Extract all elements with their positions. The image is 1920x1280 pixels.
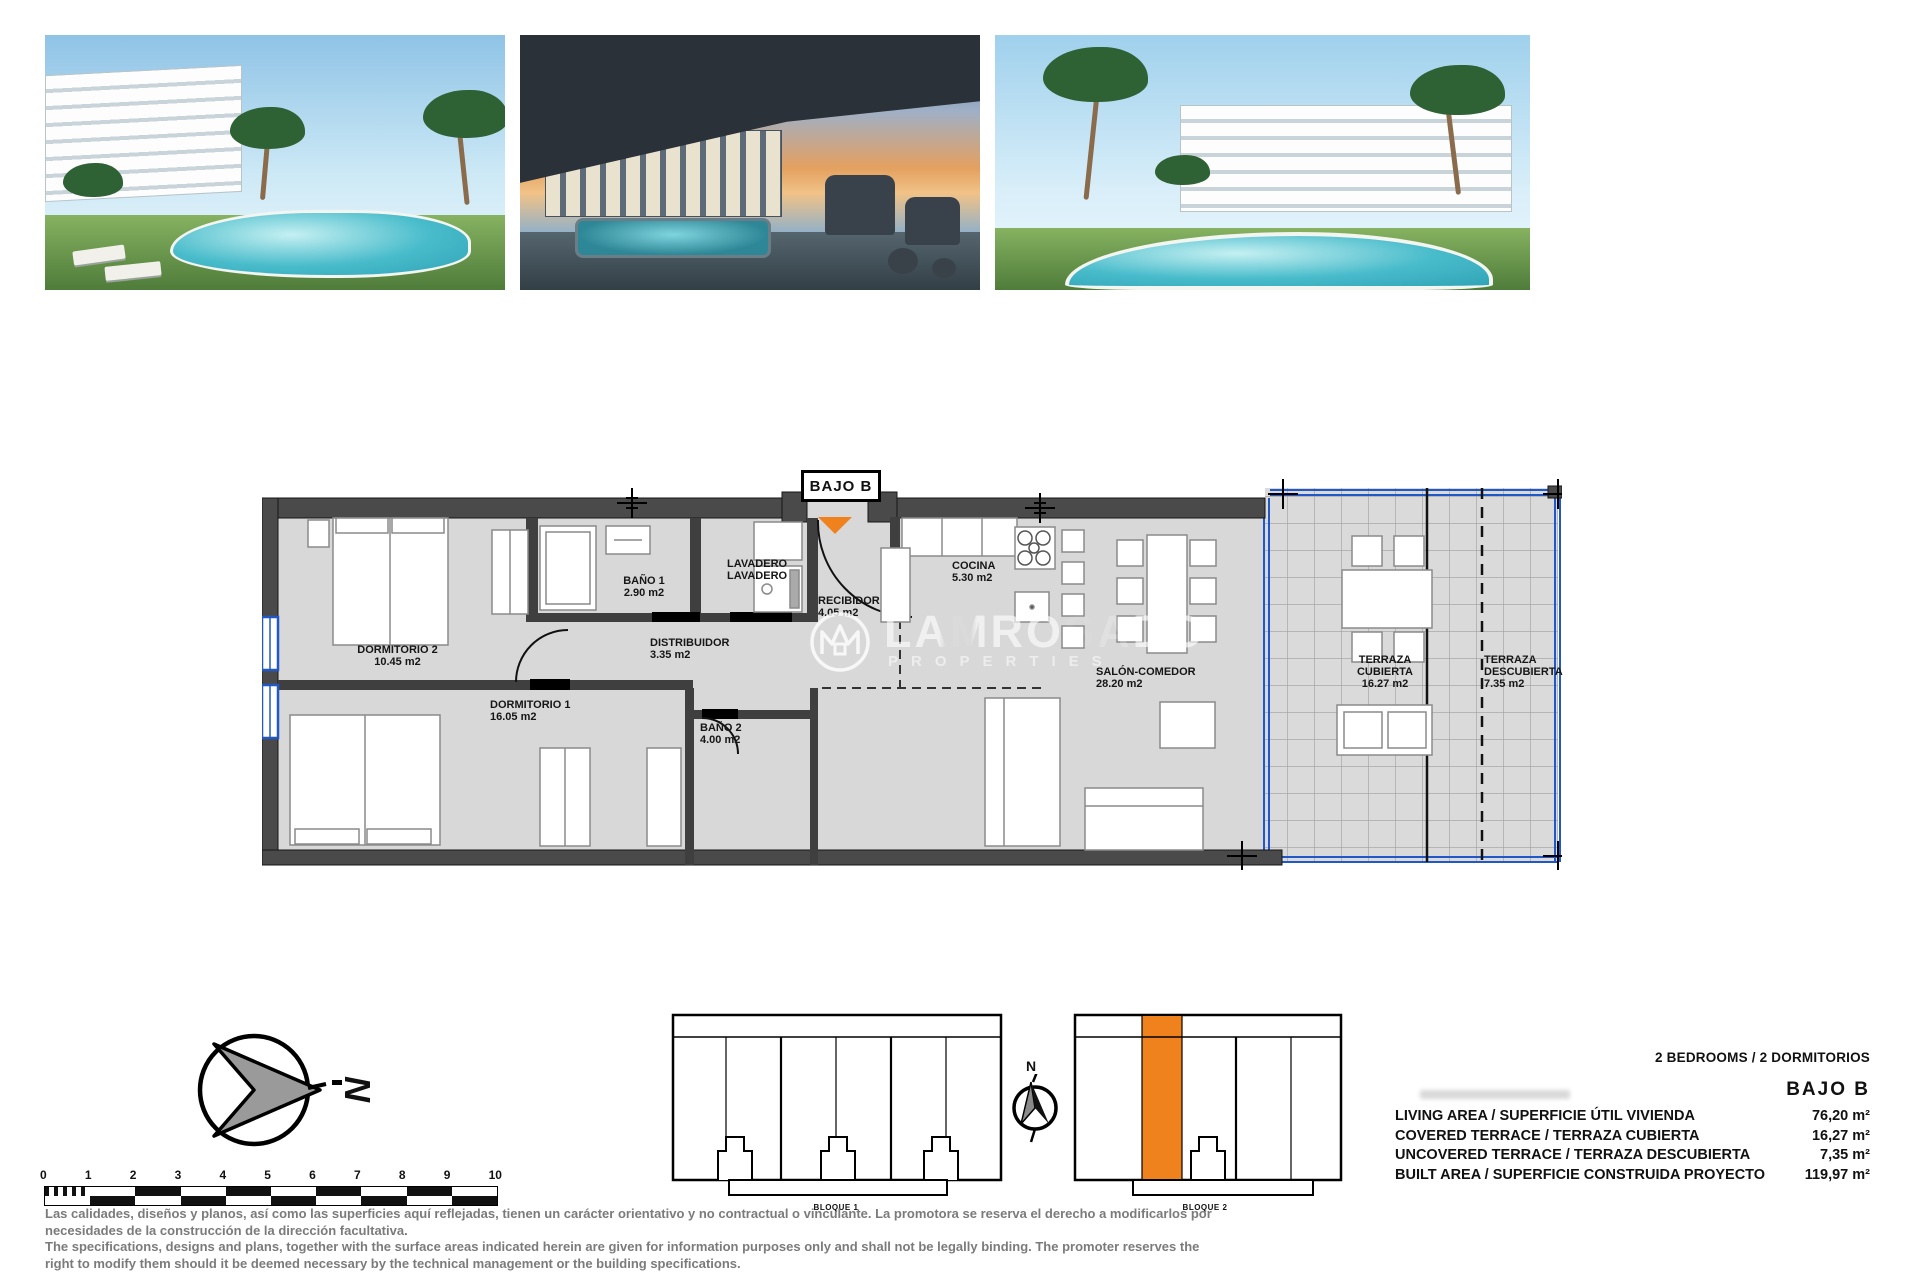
plan-unit-label: BAJO B bbox=[801, 470, 881, 502]
vase bbox=[888, 248, 918, 274]
room-label-bano1: BAÑO 1 2.90 m2 bbox=[598, 575, 690, 599]
armchair-silhouette bbox=[905, 197, 960, 245]
photo-terrace-sunset bbox=[520, 35, 980, 290]
keyplan-block1 bbox=[671, 1013, 1003, 1199]
scale-bar-numbers: 01 23 45 67 89 10 bbox=[40, 1168, 502, 1182]
north-label-small: N bbox=[1026, 1058, 1036, 1074]
room-label-bano2: BAÑO 2 4.00 m2 bbox=[700, 722, 780, 746]
brochure-page: BAJO B DORMITORIO 2 10.45 m2 BAÑO 1 2.90… bbox=[0, 0, 1920, 1280]
pool-dusk bbox=[575, 218, 771, 258]
compass-small-icon bbox=[1010, 1074, 1062, 1150]
palm-crown bbox=[423, 90, 505, 138]
room-label-terraza-cubierta: TERRAZA CUBIERTA 16.27 m2 bbox=[1340, 654, 1430, 690]
shrub bbox=[63, 163, 123, 197]
armchair-silhouette bbox=[825, 175, 895, 235]
palm-crown bbox=[230, 107, 305, 149]
bedrooms-line: 2 BEDROOMS / 2 DORMITORIOS bbox=[1395, 1050, 1870, 1065]
pool bbox=[170, 210, 471, 278]
shrub bbox=[1155, 155, 1210, 185]
keyplan-block2 bbox=[1073, 1013, 1345, 1199]
room-label-dormitorio1: DORMITORIO 1 16.05 m2 bbox=[490, 699, 600, 723]
blurred-project-name bbox=[1420, 1090, 1570, 1099]
summary-row: COVERED TERRACE / TERRAZA CUBIERTA 16,27… bbox=[1395, 1127, 1870, 1147]
photo-pool-day-1 bbox=[45, 35, 505, 290]
unit-summary: 2 BEDROOMS / 2 DORMITORIOS BAJO B LIVING… bbox=[1395, 1050, 1870, 1185]
room-label-terraza-descubierta: TERRAZA DESCUBIERTA 7.35 m2 bbox=[1484, 654, 1564, 690]
scale-bar bbox=[44, 1186, 498, 1206]
watermark-logo-icon bbox=[808, 610, 872, 674]
legal-disclaimer: Las calidades, diseños y planos, así com… bbox=[45, 1206, 1575, 1272]
highlighted-unit bbox=[1142, 1016, 1182, 1179]
palm-crown bbox=[1410, 65, 1505, 115]
summary-row: UNCOVERED TERRACE / TERRAZA DESCUBIERTA … bbox=[1395, 1146, 1870, 1166]
room-label-distribuidor: DISTRIBUIDOR 3.35 m2 bbox=[650, 637, 760, 661]
room-label-cocina: COCINA 5.30 m2 bbox=[952, 560, 1042, 584]
room-label-lavadero: LAVADERO LAVADERO bbox=[727, 558, 822, 582]
summary-row: BUILT AREA / SUPERFICIE CONSTRUIDA PROYE… bbox=[1395, 1166, 1870, 1186]
summary-row: LIVING AREA / SUPERFICIE ÚTIL VIVIENDA 7… bbox=[1395, 1107, 1870, 1127]
palm-crown bbox=[1043, 47, 1148, 102]
north-label: N bbox=[336, 1076, 378, 1102]
photo-pool-day-2 bbox=[995, 35, 1530, 290]
watermark-brand: LAMROSADO bbox=[884, 606, 1206, 658]
vase bbox=[932, 258, 956, 278]
room-label-dormitorio2: DORMITORIO 2 10.45 m2 bbox=[330, 644, 465, 668]
watermark-sub: PROPERTIES bbox=[888, 653, 1115, 670]
apartment-building bbox=[1180, 105, 1512, 212]
